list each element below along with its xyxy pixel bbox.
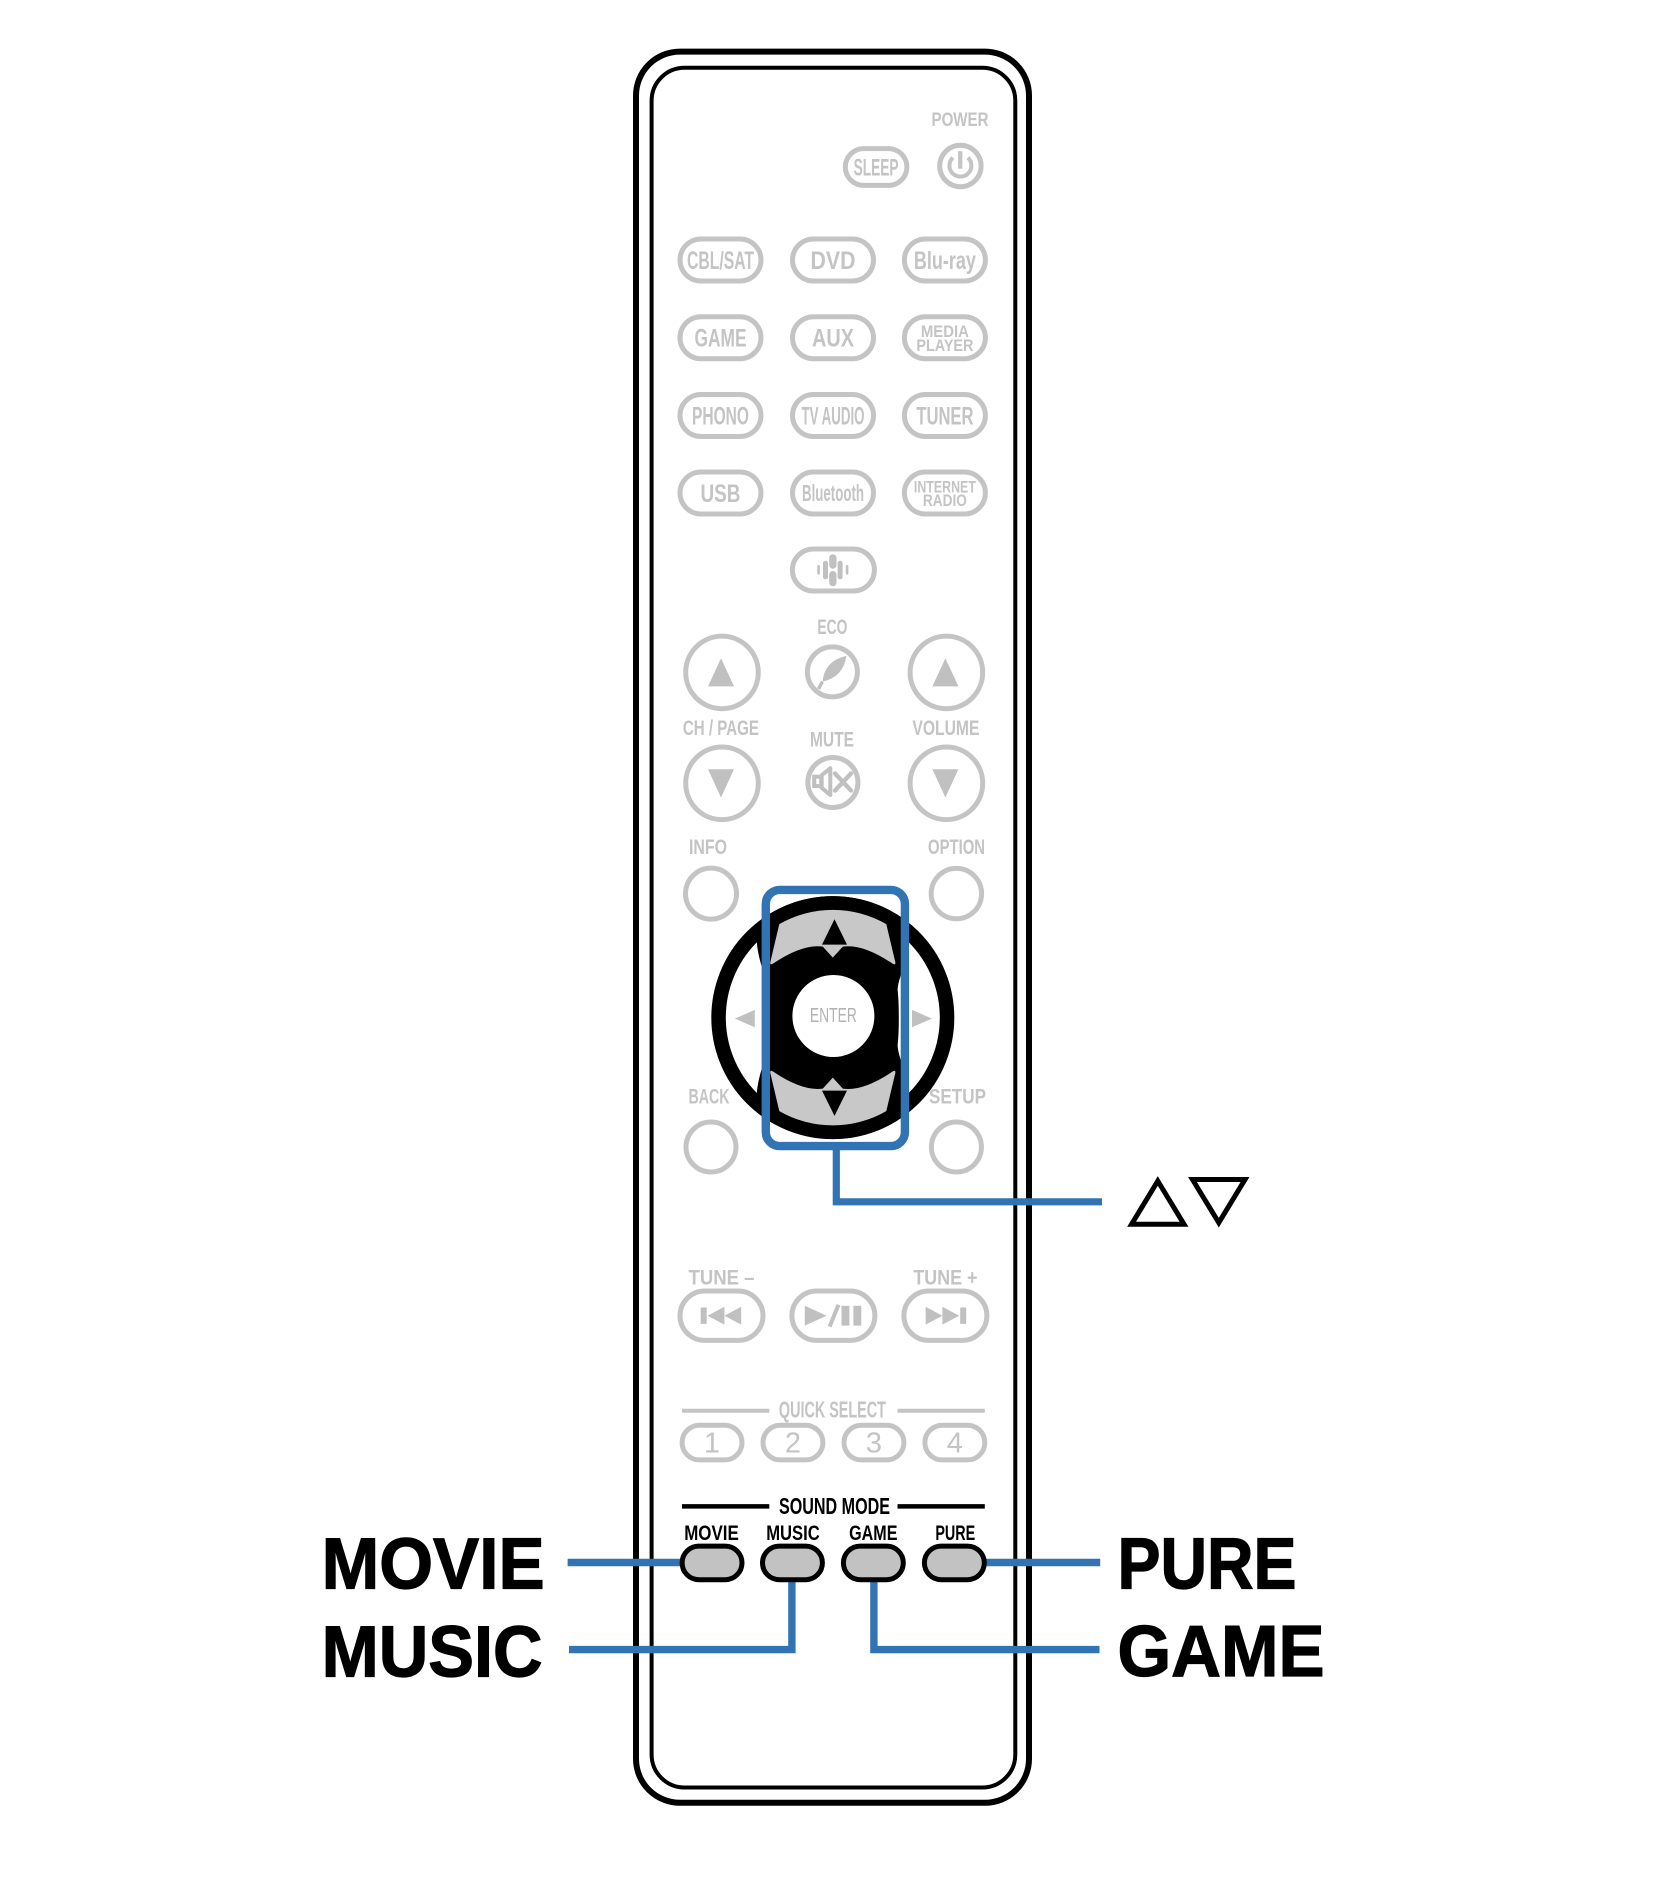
svg-text:PURE: PURE xyxy=(935,1522,975,1545)
svg-text:3: 3 xyxy=(866,1428,882,1460)
svg-text:QUICK SELECT: QUICK SELECT xyxy=(779,1397,886,1423)
svg-text:1: 1 xyxy=(704,1428,720,1460)
svg-text:PHONO: PHONO xyxy=(692,403,749,431)
svg-text:Bluetooth: Bluetooth xyxy=(802,480,864,506)
svg-text:SOUND MODE: SOUND MODE xyxy=(779,1493,890,1519)
svg-text:OPTION: OPTION xyxy=(928,835,985,859)
svg-text:MOVIE: MOVIE xyxy=(684,1522,739,1545)
svg-text:RADIO: RADIO xyxy=(923,492,967,510)
svg-text:TUNE –: TUNE – xyxy=(689,1266,755,1290)
svg-text:MUSIC: MUSIC xyxy=(766,1522,820,1545)
svg-text:4: 4 xyxy=(947,1428,963,1460)
svg-text:ENTER: ENTER xyxy=(810,1005,857,1027)
svg-text:GAME: GAME xyxy=(1118,1612,1325,1692)
svg-text:SETUP: SETUP xyxy=(929,1084,986,1108)
svg-text:AUX: AUX xyxy=(812,325,854,353)
svg-text:USB: USB xyxy=(701,480,741,508)
svg-text:CH / PAGE: CH / PAGE xyxy=(683,716,759,740)
svg-text:SLEEP: SLEEP xyxy=(854,154,899,181)
svg-text:ECO: ECO xyxy=(817,616,847,639)
svg-text:MOVIE: MOVIE xyxy=(322,1524,545,1604)
svg-text:GAME: GAME xyxy=(695,325,747,353)
svg-text:VOLUME: VOLUME xyxy=(912,716,979,740)
svg-text:TUNER: TUNER xyxy=(916,403,973,431)
svg-text:PURE: PURE xyxy=(1118,1524,1297,1604)
svg-text:MUSIC: MUSIC xyxy=(322,1613,543,1693)
svg-text:POWER: POWER xyxy=(932,109,989,131)
svg-text:GAME: GAME xyxy=(849,1522,897,1545)
svg-text:Blu-ray: Blu-ray xyxy=(914,247,976,275)
svg-text:TV AUDIO: TV AUDIO xyxy=(802,403,865,431)
svg-text:PLAYER: PLAYER xyxy=(916,337,973,355)
svg-text:INFO: INFO xyxy=(689,835,727,859)
svg-text:DVD: DVD xyxy=(811,247,856,275)
svg-text:MUTE: MUTE xyxy=(810,728,854,752)
svg-text:2: 2 xyxy=(785,1428,801,1460)
svg-text:BACK: BACK xyxy=(689,1084,730,1108)
svg-text:TUNE +: TUNE + xyxy=(913,1266,977,1290)
svg-text:CBL/SAT: CBL/SAT xyxy=(687,247,754,275)
